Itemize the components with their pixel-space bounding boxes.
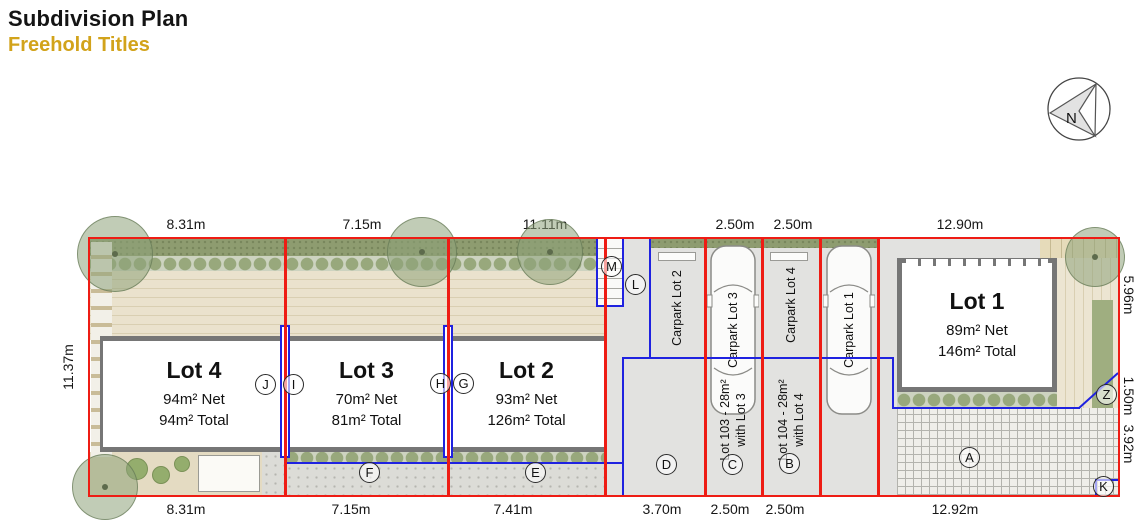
dim-bottom-lot4: 8.31m [151, 501, 221, 517]
dim-bottom-lot2: 7.41m [478, 501, 548, 517]
dim-top-lot4: 8.31m [151, 216, 221, 232]
dim-top-cp4: 2.50m [758, 216, 828, 232]
marker-j: J [255, 374, 276, 395]
subdivision-plan-page: Subdivision Plan Freehold Titles N [0, 0, 1144, 523]
marker-z: Z [1096, 384, 1117, 405]
marker-h: H [430, 373, 451, 394]
dim-bottom-lot3: 7.15m [316, 501, 386, 517]
page-title: Subdivision Plan [8, 6, 188, 32]
page-subtitle: Freehold Titles [8, 34, 150, 57]
dim-bottom-lot104: 2.50m [750, 501, 820, 517]
dim-right-upper: 5.96m [1121, 260, 1137, 330]
marker-e: E [525, 462, 546, 483]
compass-icon [1044, 74, 1114, 144]
marker-m: M [601, 256, 622, 277]
marker-f: F [359, 462, 380, 483]
lot-boundary [819, 237, 822, 497]
compass-north-label: N [1066, 110, 1077, 127]
lot-boundary [704, 237, 707, 497]
lot-boundary [447, 237, 450, 497]
marker-k: K [1093, 476, 1114, 497]
dim-left-lot4: 11.37m [60, 332, 76, 402]
marker-c: C [722, 454, 743, 475]
lot-boundary [761, 237, 764, 497]
marker-b: B [779, 453, 800, 474]
dim-top-lot1: 12.90m [925, 216, 995, 232]
lot-boundary [284, 237, 287, 497]
marker-g: G [453, 373, 474, 394]
dim-bottom-lot1: 12.92m [920, 501, 990, 517]
marker-d: D [656, 454, 677, 475]
lot-boundary [877, 237, 880, 497]
marker-i: I [283, 374, 304, 395]
marker-l: L [625, 274, 646, 295]
marker-a: A [959, 447, 980, 468]
dim-top-lot3: 7.15m [327, 216, 397, 232]
dim-right-lower: 3.92m [1121, 409, 1137, 479]
dim-bottom-drive: 3.70m [627, 501, 697, 517]
north-arrow-compass: N [1044, 74, 1114, 144]
